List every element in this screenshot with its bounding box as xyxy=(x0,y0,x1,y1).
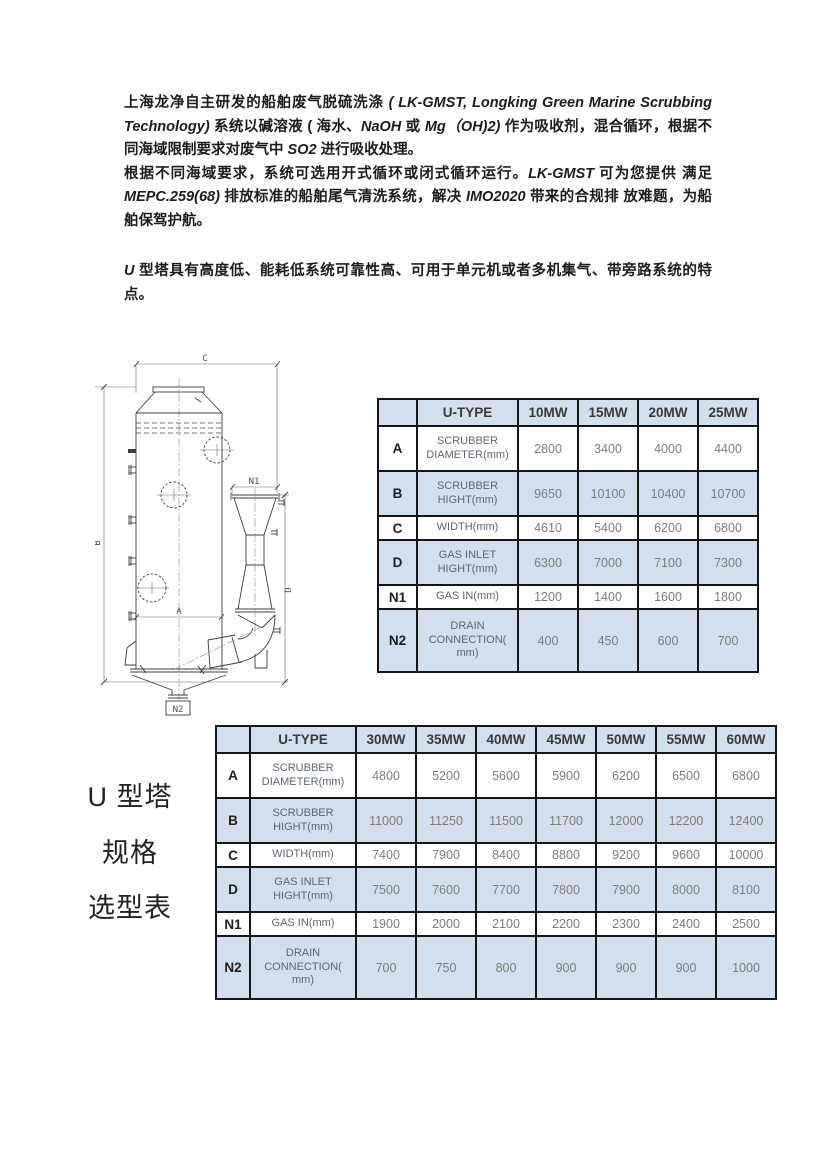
spec-row-N2: N2DRAIN CONNECTION( mm)400450600700 xyxy=(378,609,758,672)
spec-value: 7600 xyxy=(416,867,476,912)
spec-value: 900 xyxy=(536,936,596,999)
row-key: D xyxy=(378,540,417,585)
intro-paragraph-1: 上海龙净自主研发的船舶废气脱硫洗涤 ( LK-GMST, Longking Gr… xyxy=(124,92,712,163)
utype-feature-paragraph: U 型塔具有高度低、能耗低系统可靠性高、可用于单元机或者多机集气、带旁路系统的特… xyxy=(124,260,712,307)
row-label: GAS INLET HIGHT(mm) xyxy=(417,540,518,585)
spec-value: 450 xyxy=(578,609,638,672)
column-header: 25MW xyxy=(698,399,758,426)
intro-paragraph-2: 根据不同海域要求，系统可选用开式循环或闭式循环运行。LK-GMST 可为您提供 … xyxy=(124,163,712,234)
text-run: 系统以碱溶液 ( 海水、 xyxy=(210,119,361,135)
spec-value: 4400 xyxy=(698,426,758,471)
spec-value: 6800 xyxy=(698,516,758,540)
column-header: 60MW xyxy=(716,726,776,753)
spec-value: 9200 xyxy=(596,843,656,867)
spec-row-D: DGAS INLET HIGHT(mm)6300700071007300 xyxy=(378,540,758,585)
row-label: SCRUBBER HIGHT(mm) xyxy=(417,471,518,516)
document-page: 上海龙净自主研发的船舶废气脱硫洗涤 ( LK-GMST, Longking Gr… xyxy=(0,0,830,1174)
spec-value: 5600 xyxy=(476,753,536,798)
spec-value: 12000 xyxy=(596,798,656,843)
spec-value: 700 xyxy=(356,936,416,999)
row-key: A xyxy=(378,426,417,471)
dim-label-c: C xyxy=(202,354,207,364)
row-label: DRAIN CONNECTION( mm) xyxy=(417,609,518,672)
column-header: U-TYPE xyxy=(250,726,356,753)
column-header: 10MW xyxy=(518,399,578,426)
side-caption-line-1: U 型塔 xyxy=(78,770,182,826)
dim-label-d: D xyxy=(284,587,294,592)
row-label: SCRUBBER HIGHT(mm) xyxy=(250,798,356,843)
latin-term: U xyxy=(124,263,134,279)
scrubber-drawing-svg: C B D N1 A xyxy=(95,338,335,723)
text-run: 根据不同海域要求，系统可选用开式循环或闭式循环运行。 xyxy=(124,166,528,182)
column-header: 15MW xyxy=(578,399,638,426)
spec-value: 5900 xyxy=(536,753,596,798)
spec-value: 11250 xyxy=(416,798,476,843)
dim-label-b: B xyxy=(95,540,103,545)
spec-value: 6200 xyxy=(638,516,698,540)
text-run: 上海龙净自主研发的船舶废气脱硫洗涤 xyxy=(124,95,389,111)
utype-spec-table-10-25mw: U-TYPE10MW15MW20MW25MWASCRUBBER DIAMETER… xyxy=(377,398,759,673)
spec-value: 5400 xyxy=(578,516,638,540)
row-label: DRAIN CONNECTION( mm) xyxy=(250,936,356,999)
spec-value: 2100 xyxy=(476,912,536,936)
spec-row-N1: N1GAS IN(mm)1200140016001800 xyxy=(378,585,758,609)
row-label: GAS IN(mm) xyxy=(417,585,518,609)
spec-value: 11000 xyxy=(356,798,416,843)
spec-value: 600 xyxy=(638,609,698,672)
latin-term: SO2 xyxy=(288,142,317,158)
text-run: 型塔具有高度低、能耗低系统可靠性高、可用于单元机或者多机集气、带旁路系统的特点。 xyxy=(124,263,712,303)
spec-value: 6200 xyxy=(596,753,656,798)
spec-value: 400 xyxy=(518,609,578,672)
spec-row-C: CWIDTH(mm)74007900840088009200960010000 xyxy=(216,843,776,867)
dim-label-n2: N2 xyxy=(173,705,184,715)
scrubber-technical-drawing: C B D N1 A xyxy=(95,338,335,723)
spec-value: 7700 xyxy=(476,867,536,912)
spec-value: 5200 xyxy=(416,753,476,798)
row-key: C xyxy=(216,843,250,867)
spec-value: 7400 xyxy=(356,843,416,867)
corner-cell xyxy=(216,726,250,753)
utype-spec-table-30-60mw: U-TYPE30MW35MW40MW45MW50MW55MW60MWASCRUB… xyxy=(215,725,777,1000)
spec-row-B: BSCRUBBER HIGHT(mm)110001125011500117001… xyxy=(216,798,776,843)
spec-value: 6300 xyxy=(518,540,578,585)
spec-value: 12400 xyxy=(716,798,776,843)
spec-value: 7900 xyxy=(596,867,656,912)
latin-term: Mg（OH)2) xyxy=(425,119,501,135)
text-run: 排放标准的船舶尾气清洗系统，解决 xyxy=(220,189,466,205)
column-header: 20MW xyxy=(638,399,698,426)
spec-value: 900 xyxy=(656,936,716,999)
row-key: C xyxy=(378,516,417,540)
dim-label-n1: N1 xyxy=(249,477,260,487)
latin-term: LK-GMST xyxy=(528,166,594,182)
spec-value: 2200 xyxy=(536,912,596,936)
spec-row-A: ASCRUBBER DIAMETER(mm)2800340040004400 xyxy=(378,426,758,471)
header-row: U-TYPE10MW15MW20MW25MW xyxy=(378,399,758,426)
row-key: B xyxy=(378,471,417,516)
column-header: 50MW xyxy=(596,726,656,753)
spec-value: 3400 xyxy=(578,426,638,471)
spec-value: 12200 xyxy=(656,798,716,843)
column-header: 35MW xyxy=(416,726,476,753)
side-caption-line-3: 选型表 xyxy=(78,881,182,937)
spec-value: 8400 xyxy=(476,843,536,867)
row-key: N1 xyxy=(216,912,250,936)
spec-value: 7500 xyxy=(356,867,416,912)
row-label: SCRUBBER DIAMETER(mm) xyxy=(417,426,518,471)
spec-value: 8800 xyxy=(536,843,596,867)
spec-value: 1400 xyxy=(578,585,638,609)
column-header: 45MW xyxy=(536,726,596,753)
spec-value: 7900 xyxy=(416,843,476,867)
spec-value: 6800 xyxy=(716,753,776,798)
row-label: GAS IN(mm) xyxy=(250,912,356,936)
spec-value: 9600 xyxy=(656,843,716,867)
spec-value: 2500 xyxy=(716,912,776,936)
spec-value: 10100 xyxy=(578,471,638,516)
row-key: A xyxy=(216,753,250,798)
column-header: 40MW xyxy=(476,726,536,753)
spec-row-A: ASCRUBBER DIAMETER(mm)480052005600590062… xyxy=(216,753,776,798)
spec-value: 1000 xyxy=(716,936,776,999)
side-caption-line-2: 规格 xyxy=(78,826,182,882)
spec-value: 900 xyxy=(596,936,656,999)
spec-value: 7100 xyxy=(638,540,698,585)
text-run: 进行吸收处理。 xyxy=(317,142,423,158)
row-key: N2 xyxy=(378,609,417,672)
spec-value: 1600 xyxy=(638,585,698,609)
spec-value: 2800 xyxy=(518,426,578,471)
spec-value: 10700 xyxy=(698,471,758,516)
row-key: B xyxy=(216,798,250,843)
spec-value: 8000 xyxy=(656,867,716,912)
spec-value: 2300 xyxy=(596,912,656,936)
spec-value: 800 xyxy=(476,936,536,999)
spec-row-C: CWIDTH(mm)4610540062006800 xyxy=(378,516,758,540)
spec-value: 4610 xyxy=(518,516,578,540)
column-header: 30MW xyxy=(356,726,416,753)
spec-value: 750 xyxy=(416,936,476,999)
spec-value: 4800 xyxy=(356,753,416,798)
spec-row-D: DGAS INLET HIGHT(mm)75007600770078007900… xyxy=(216,867,776,912)
corner-cell xyxy=(378,399,417,426)
spec-row-N2: N2DRAIN CONNECTION( mm)70075080090090090… xyxy=(216,936,776,999)
spec-value: 2000 xyxy=(416,912,476,936)
text-run: 或 xyxy=(401,119,425,135)
spec-value: 700 xyxy=(698,609,758,672)
spec-value: 10400 xyxy=(638,471,698,516)
row-key: N1 xyxy=(378,585,417,609)
spec-value: 9650 xyxy=(518,471,578,516)
header-row: U-TYPE30MW35MW40MW45MW50MW55MW60MW xyxy=(216,726,776,753)
row-label: WIDTH(mm) xyxy=(417,516,518,540)
text-run: 可为您提供 满足 xyxy=(594,166,712,182)
spec-value: 4000 xyxy=(638,426,698,471)
column-header: U-TYPE xyxy=(417,399,518,426)
column-header: 55MW xyxy=(656,726,716,753)
spec-value: 6500 xyxy=(656,753,716,798)
spec-value: 8100 xyxy=(716,867,776,912)
latin-term: MEPC.259(68) xyxy=(124,189,220,205)
spec-value: 7300 xyxy=(698,540,758,585)
side-caption: U 型塔 规格 选型表 xyxy=(78,770,182,937)
row-label: WIDTH(mm) xyxy=(250,843,356,867)
row-key: N2 xyxy=(216,936,250,999)
spec-value: 2400 xyxy=(656,912,716,936)
spec-value: 1800 xyxy=(698,585,758,609)
latin-term: IMO2020 xyxy=(466,189,526,205)
spec-value: 11700 xyxy=(536,798,596,843)
row-label: SCRUBBER DIAMETER(mm) xyxy=(250,753,356,798)
spec-row-N1: N1GAS IN(mm)1900200021002200230024002500 xyxy=(216,912,776,936)
spec-value: 1200 xyxy=(518,585,578,609)
spec-value: 7800 xyxy=(536,867,596,912)
spec-value: 7000 xyxy=(578,540,638,585)
spec-row-B: BSCRUBBER HIGHT(mm)9650101001040010700 xyxy=(378,471,758,516)
row-key: D xyxy=(216,867,250,912)
spec-value: 11500 xyxy=(476,798,536,843)
row-label: GAS INLET HIGHT(mm) xyxy=(250,867,356,912)
intro-text-block: 上海龙净自主研发的船舶废气脱硫洗涤 ( LK-GMST, Longking Gr… xyxy=(124,92,712,307)
spec-value: 1900 xyxy=(356,912,416,936)
spec-value: 10000 xyxy=(716,843,776,867)
latin-term: NaOH xyxy=(361,119,401,135)
